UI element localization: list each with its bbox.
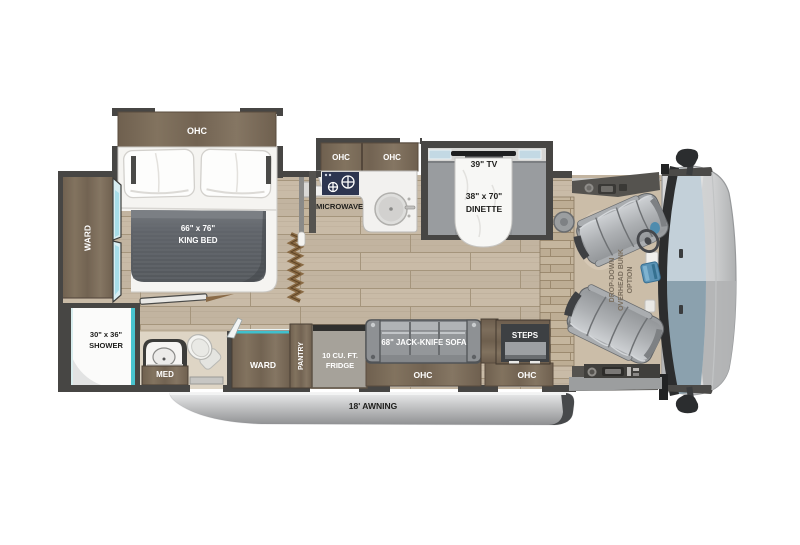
svg-text:18' AWNING: 18' AWNING bbox=[349, 401, 398, 411]
svg-text:MICROWAVE: MICROWAVE bbox=[316, 202, 363, 211]
svg-text:38" x 70": 38" x 70" bbox=[466, 191, 502, 201]
svg-text:68" JACK-KNIFE SOFA: 68" JACK-KNIFE SOFA bbox=[381, 338, 467, 347]
svg-text:SHOWER: SHOWER bbox=[89, 341, 123, 350]
svg-text:OHC: OHC bbox=[518, 370, 537, 380]
svg-text:WARD: WARD bbox=[82, 225, 92, 251]
svg-text:DROP-DOWN: DROP-DOWN bbox=[609, 258, 616, 303]
svg-text:OHC: OHC bbox=[414, 370, 433, 380]
svg-text:30" x 36": 30" x 36" bbox=[90, 330, 123, 339]
svg-text:OPTION: OPTION bbox=[627, 267, 634, 294]
svg-text:39" TV: 39" TV bbox=[471, 159, 498, 169]
svg-text:PANTRY: PANTRY bbox=[298, 342, 305, 370]
svg-text:WARD: WARD bbox=[250, 360, 276, 370]
svg-text:STEPS: STEPS bbox=[512, 331, 539, 340]
svg-text:66" x 76": 66" x 76" bbox=[181, 224, 215, 233]
svg-text:OHC: OHC bbox=[332, 153, 350, 162]
svg-text:OVERHEAD BUNK: OVERHEAD BUNK bbox=[618, 249, 625, 311]
svg-text:KING BED: KING BED bbox=[178, 236, 217, 245]
svg-text:DINETTE: DINETTE bbox=[466, 204, 503, 214]
svg-text:10 CU. FT.: 10 CU. FT. bbox=[322, 351, 358, 360]
svg-text:MED: MED bbox=[156, 370, 174, 379]
svg-text:OHC: OHC bbox=[383, 153, 401, 162]
svg-text:FRIDGE: FRIDGE bbox=[326, 361, 354, 370]
svg-text:OHC: OHC bbox=[187, 126, 208, 136]
